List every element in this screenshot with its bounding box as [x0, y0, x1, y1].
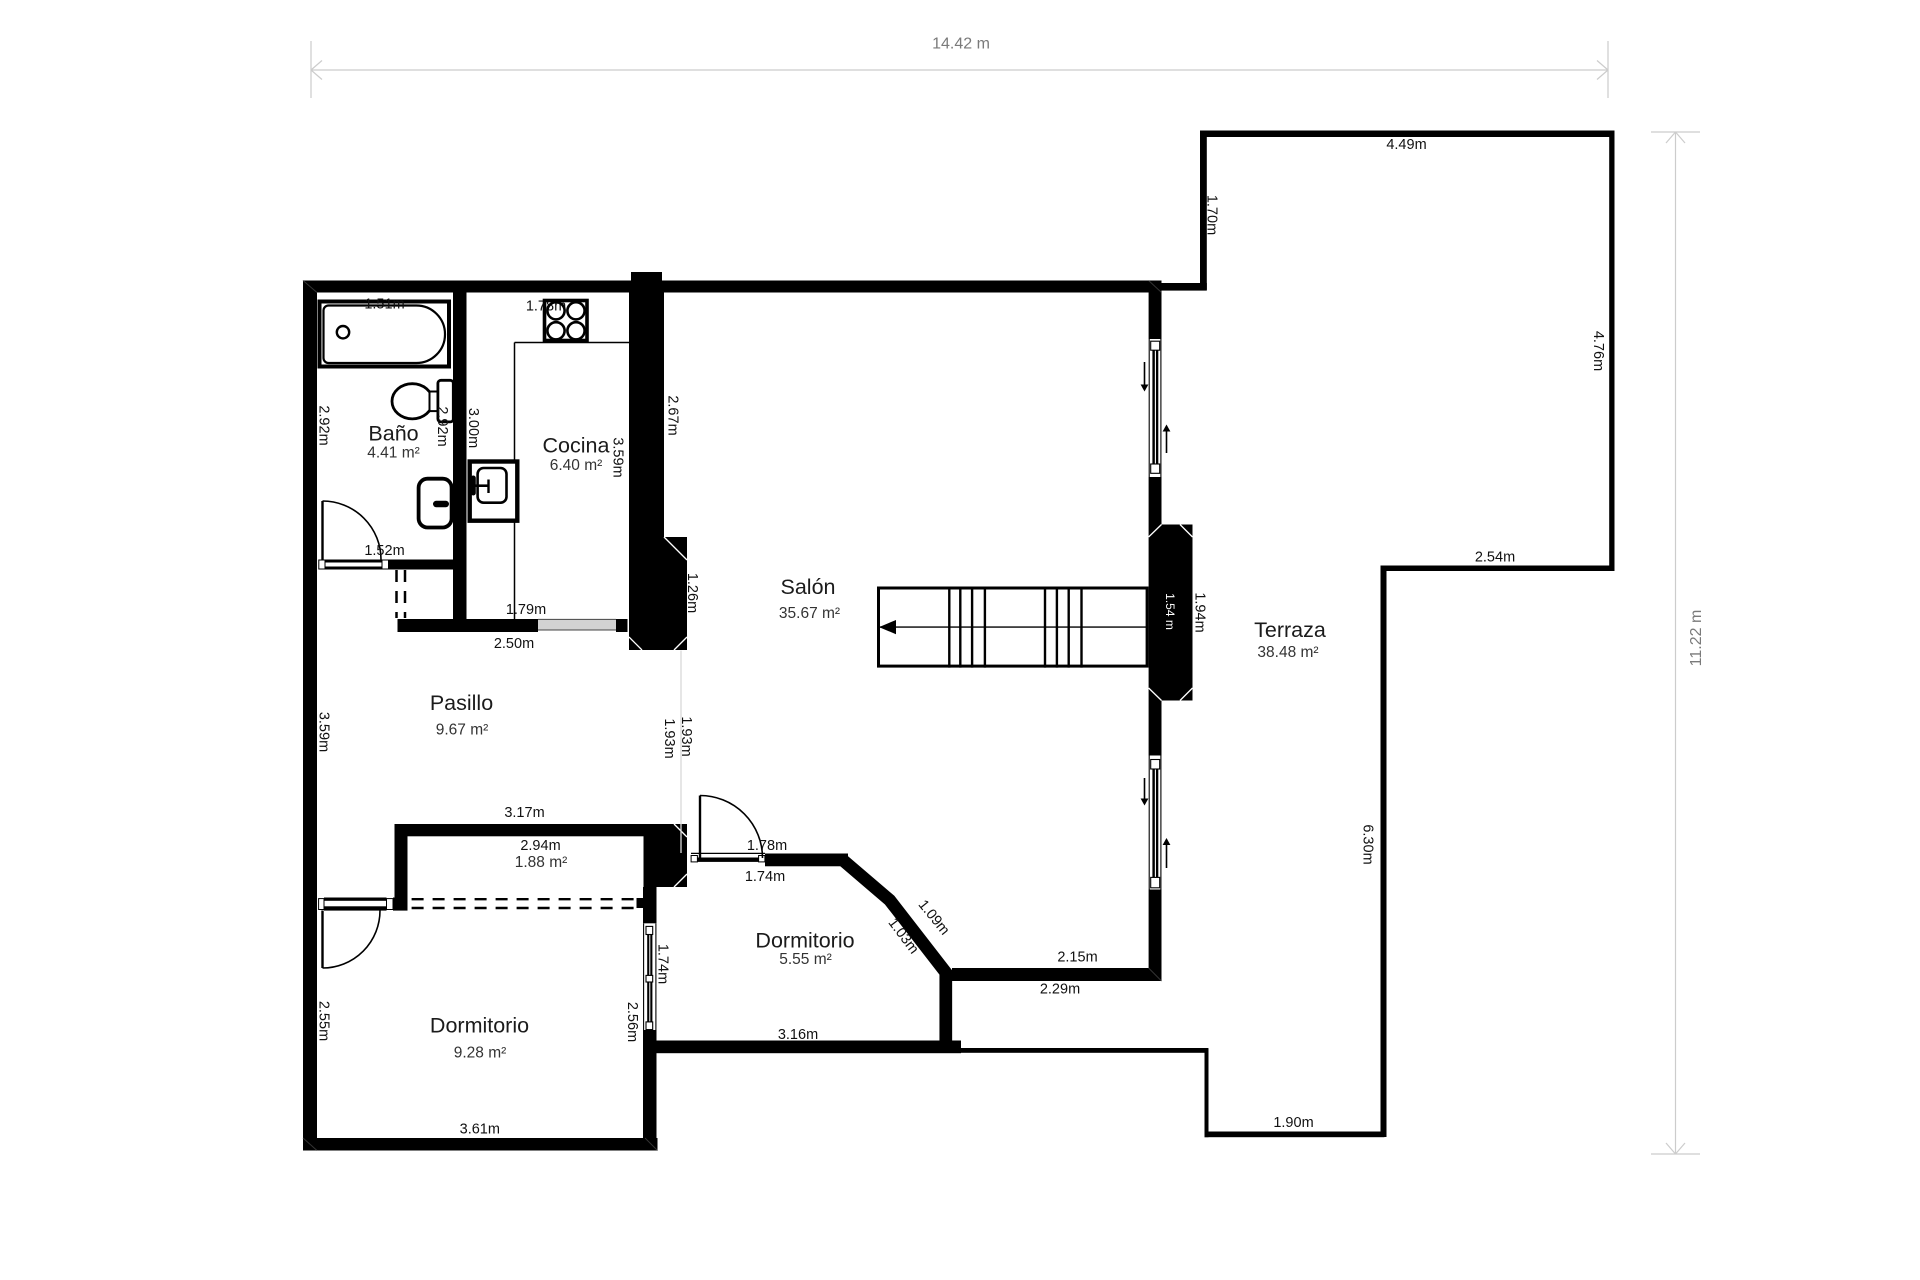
- svg-text:38.48 m²: 38.48 m²: [1257, 644, 1318, 661]
- svg-text:1.52m: 1.52m: [364, 543, 404, 559]
- svg-text:5.55 m²: 5.55 m²: [779, 951, 832, 968]
- svg-text:6.30m: 6.30m: [1359, 824, 1375, 864]
- svg-text:1.70m: 1.70m: [1203, 195, 1219, 235]
- svg-text:1.88 m²: 1.88 m²: [515, 854, 568, 871]
- svg-text:Dormitorio: Dormitorio: [430, 1014, 529, 1038]
- svg-text:1.78m: 1.78m: [747, 838, 787, 854]
- svg-text:3.61m: 3.61m: [460, 1122, 500, 1138]
- svg-text:11.22 m: 11.22 m: [1688, 610, 1705, 667]
- svg-text:9.28 m²: 9.28 m²: [454, 1045, 507, 1062]
- svg-text:2.56m: 2.56m: [624, 1002, 640, 1042]
- svg-text:3.17m: 3.17m: [504, 805, 544, 821]
- svg-text:2.29m: 2.29m: [1040, 982, 1080, 998]
- svg-text:1.93m: 1.93m: [661, 718, 677, 758]
- svg-text:1.74m: 1.74m: [745, 869, 785, 885]
- svg-text:Baño: Baño: [368, 422, 418, 446]
- svg-text:2.67m: 2.67m: [664, 395, 680, 435]
- svg-text:1.94m: 1.94m: [1191, 592, 1207, 632]
- svg-text:1.79m: 1.79m: [506, 602, 546, 618]
- svg-text:Pasillo: Pasillo: [430, 691, 493, 715]
- svg-text:2.50m: 2.50m: [494, 636, 534, 652]
- svg-text:Terraza: Terraza: [1254, 618, 1326, 642]
- svg-text:4.49m: 4.49m: [1386, 137, 1426, 153]
- svg-text:1.26m: 1.26m: [684, 573, 700, 613]
- svg-text:2.92m: 2.92m: [316, 405, 332, 445]
- svg-text:3.59m: 3.59m: [315, 712, 331, 752]
- svg-text:1.74m: 1.74m: [655, 944, 671, 984]
- svg-text:4.76m: 4.76m: [1590, 331, 1606, 371]
- svg-text:3.16m: 3.16m: [778, 1027, 818, 1043]
- svg-text:1.51m: 1.51m: [364, 297, 404, 313]
- svg-text:Cocina: Cocina: [543, 434, 610, 458]
- svg-text:Salón: Salón: [781, 575, 836, 599]
- svg-text:2.54m: 2.54m: [1475, 550, 1515, 566]
- svg-text:35.67 m²: 35.67 m²: [779, 605, 840, 622]
- svg-text:3.59m: 3.59m: [609, 437, 625, 477]
- svg-text:Dormitorio: Dormitorio: [755, 929, 854, 953]
- svg-text:2.94m: 2.94m: [520, 838, 560, 854]
- svg-text:6.40 m²: 6.40 m²: [550, 457, 603, 474]
- svg-text:1.93m: 1.93m: [678, 716, 694, 756]
- svg-text:2.92m: 2.92m: [434, 406, 450, 446]
- svg-text:9.67 m²: 9.67 m²: [436, 722, 489, 739]
- svg-text:4.41 m²: 4.41 m²: [367, 445, 420, 462]
- svg-text:1.90m: 1.90m: [1273, 1115, 1313, 1131]
- svg-text:2.15m: 2.15m: [1057, 950, 1097, 966]
- svg-text:1.54 m: 1.54 m: [1163, 593, 1177, 630]
- svg-text:3.00m: 3.00m: [465, 408, 481, 448]
- svg-text:2.55m: 2.55m: [315, 1001, 331, 1041]
- svg-text:14.42 m: 14.42 m: [932, 36, 990, 53]
